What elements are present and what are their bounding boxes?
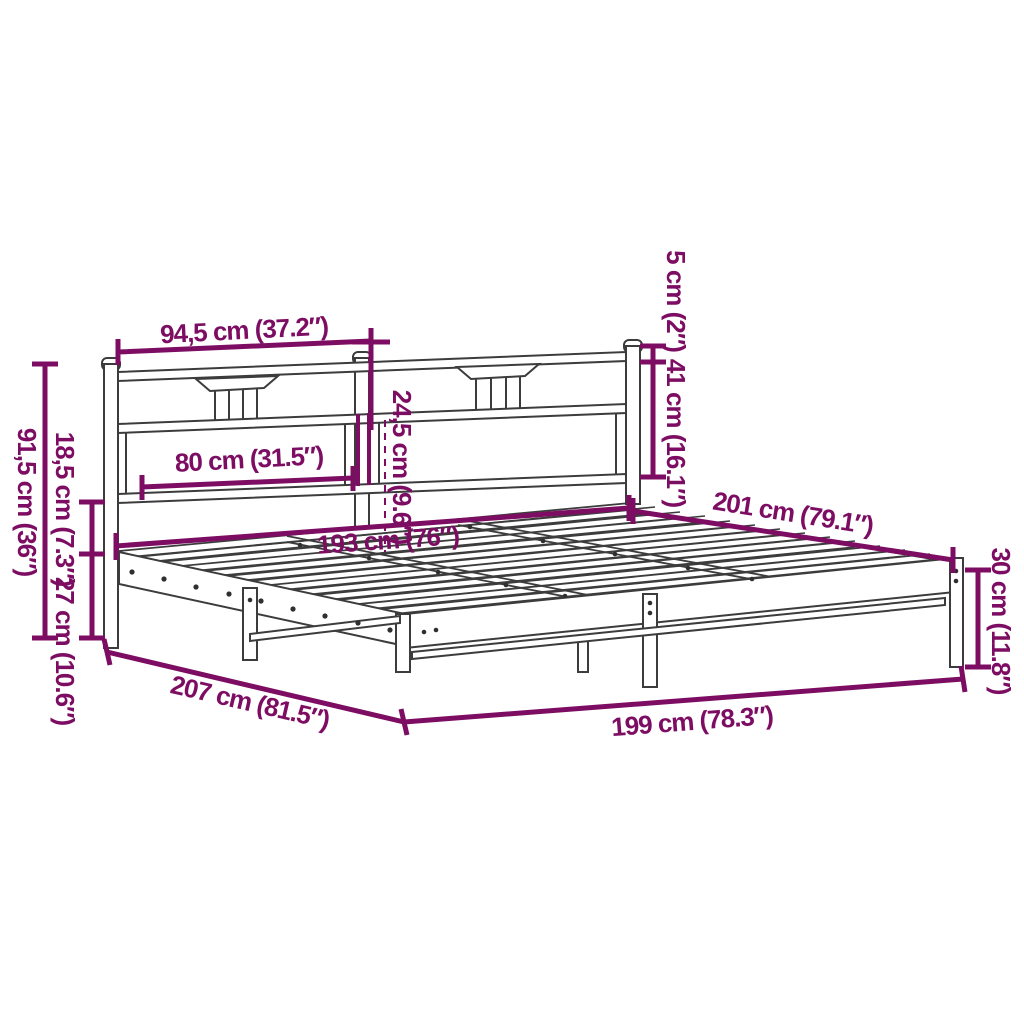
headboard-bracket-left-slats xyxy=(215,389,257,420)
dim-under-headboard-gap-label: 18,5 cm (7.3″) xyxy=(50,432,80,587)
leg-foot-middle xyxy=(643,594,657,687)
headboard-post-left xyxy=(104,364,118,648)
headboard-bracket-right-slats xyxy=(476,377,520,410)
headboard-bracket-right xyxy=(457,364,539,379)
center-support-leg xyxy=(578,640,588,672)
dim-headboard-panel-width-label: 80 cm (31.5″) xyxy=(174,440,324,478)
dim-under-headboard-gap-line xyxy=(79,502,105,554)
dim-headboard-drop-label: 24,5 cm (9.6″) xyxy=(387,390,417,545)
headboard-post-right xyxy=(626,346,640,504)
product-dimension-diagram: 94,5 cm (37.2″) 80 cm (31.5″) 24,5 cm (9… xyxy=(0,0,1024,1024)
dim-platform-height-line xyxy=(79,554,105,638)
dim-post-top-height-label: 5 cm (2″) xyxy=(661,250,691,352)
headboard-bottom-rail xyxy=(118,474,626,503)
dim-headboard-upper-height-label: 41 cm (16.1″) xyxy=(661,359,691,508)
dim-headboard-total-height-label: 91,5 cm (36″) xyxy=(12,428,42,577)
dim-floor-length-label: 207 cm (81.5″) xyxy=(168,669,333,735)
leg-foot-right xyxy=(950,558,963,667)
headboard-bracket-left xyxy=(196,376,278,391)
dim-foot-end-height-label: 30 cm (11.8″) xyxy=(986,548,1016,695)
dim-platform-height-label: 27 cm (10.6″) xyxy=(50,577,80,726)
